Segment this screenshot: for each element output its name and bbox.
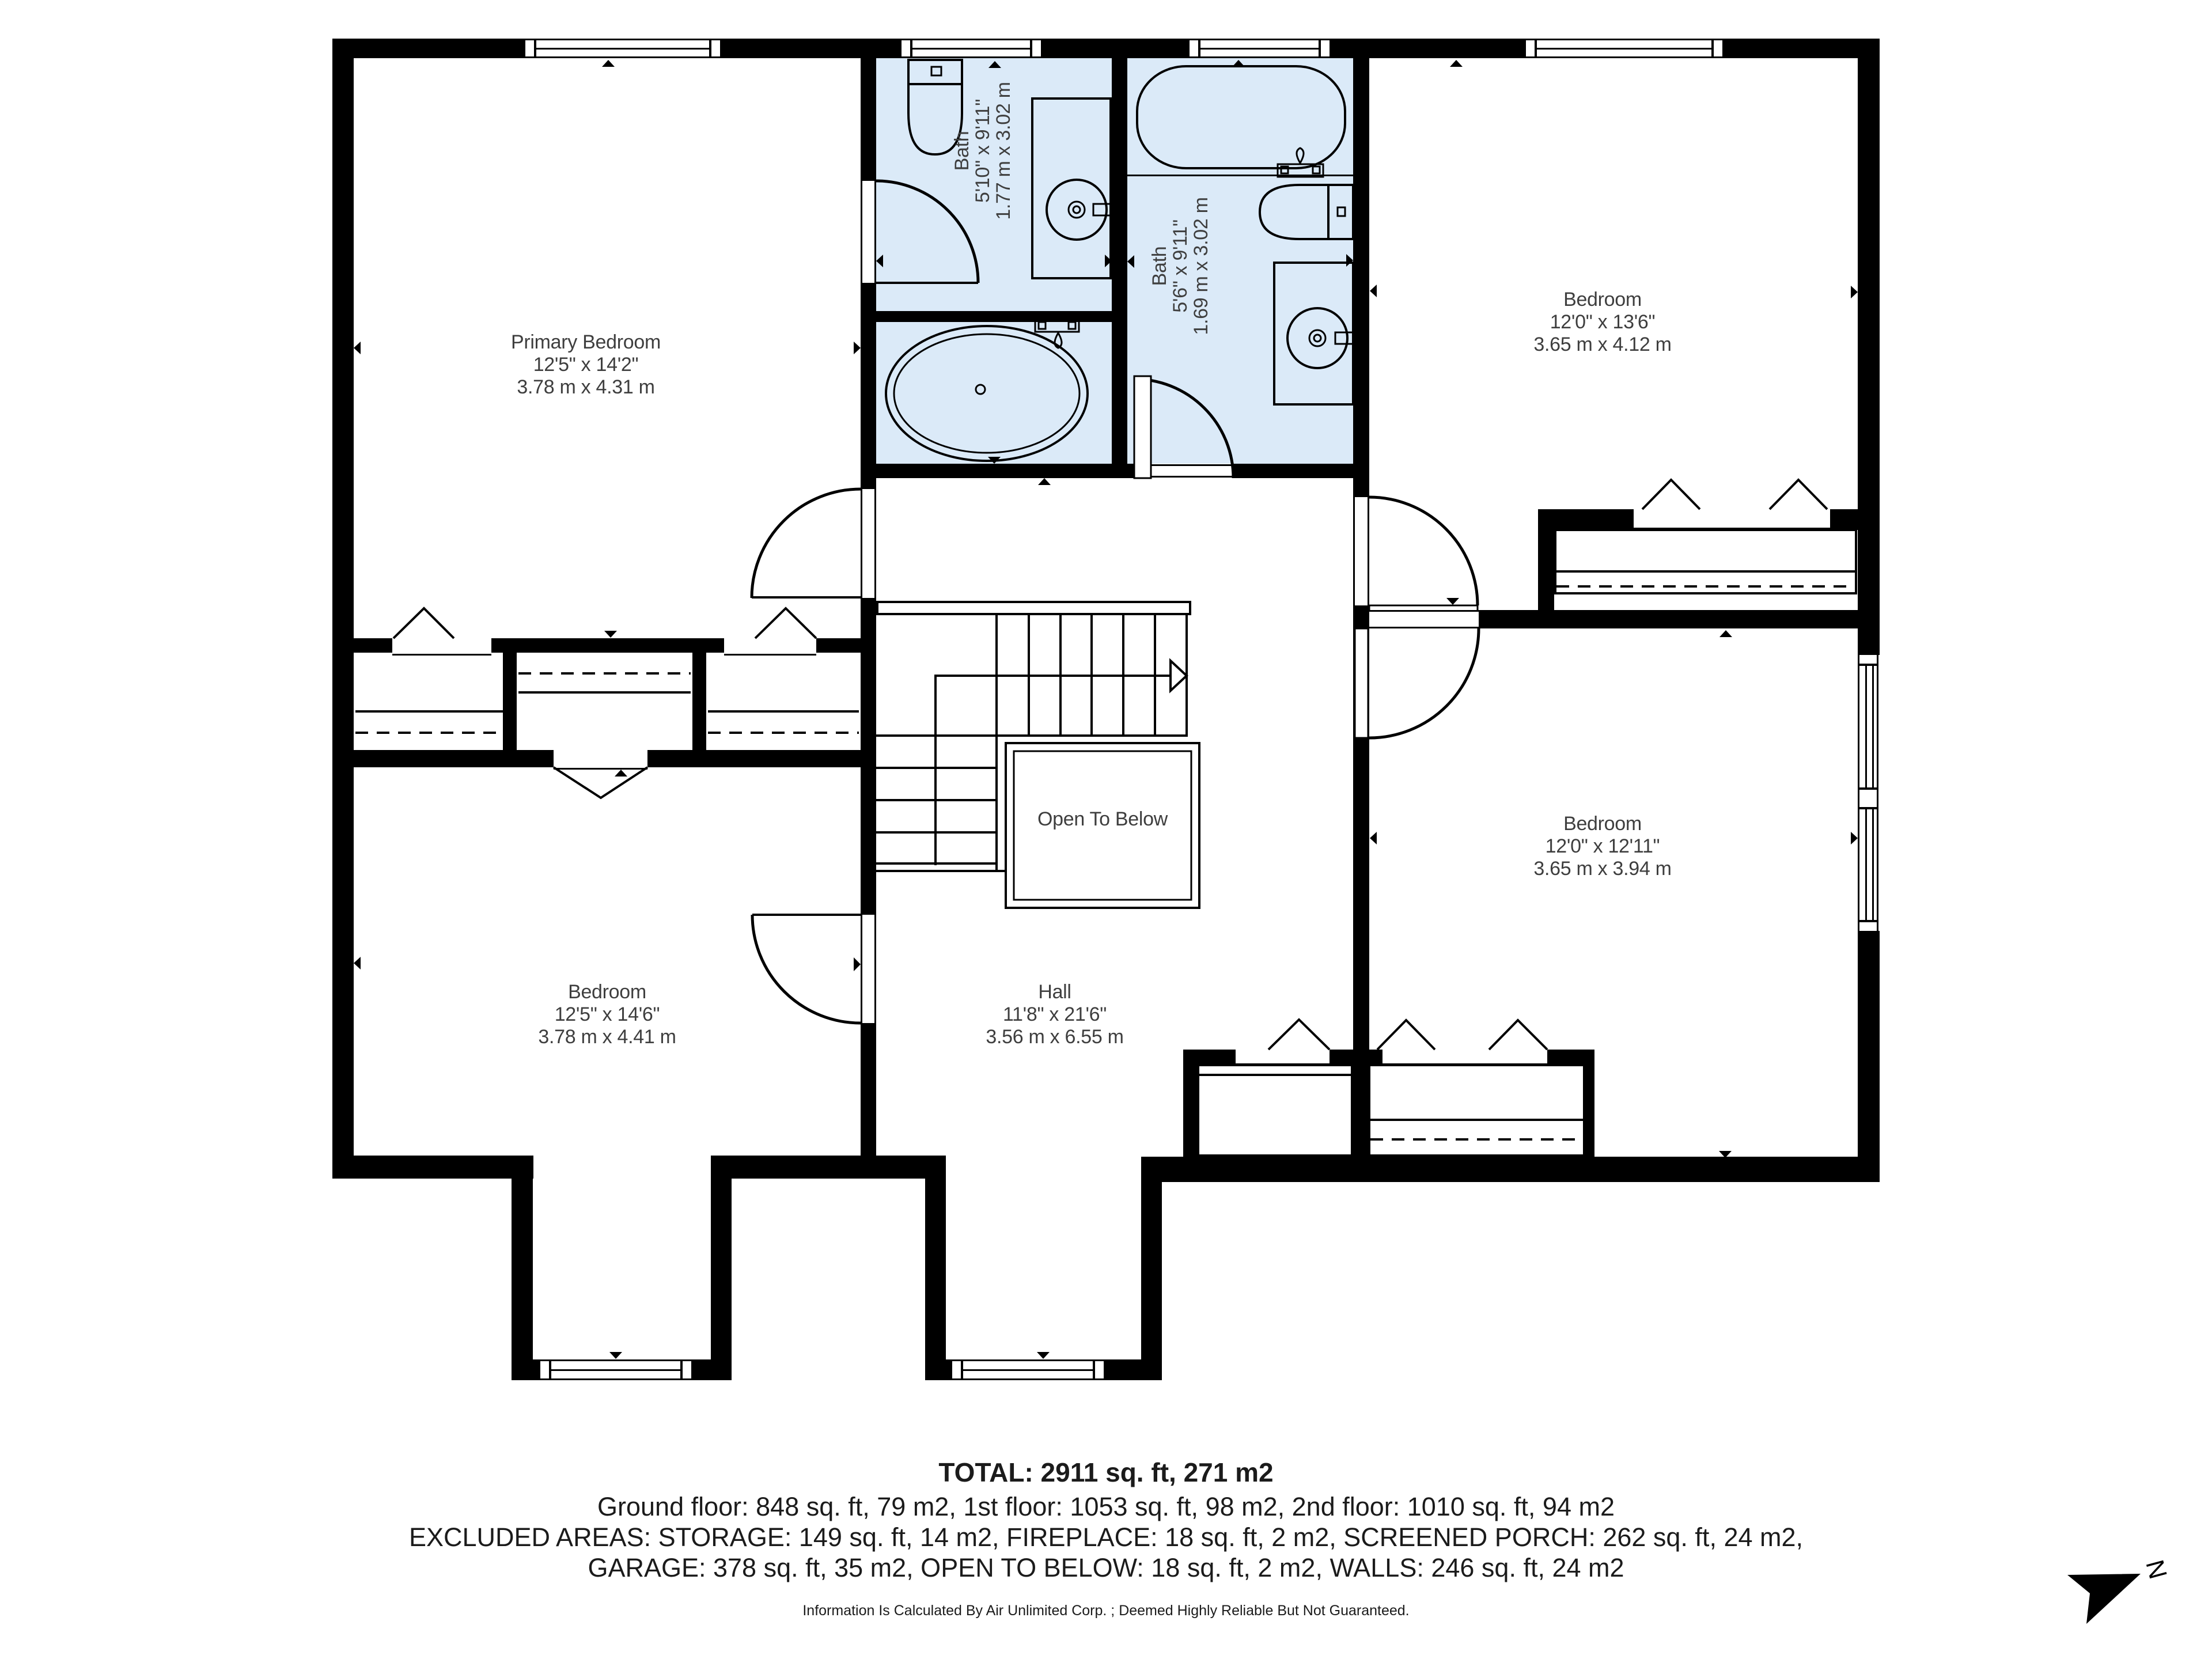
svg-text:3.78 m x 4.31 m: 3.78 m x 4.31 m <box>517 376 654 398</box>
svg-text:12'5" x 14'6": 12'5" x 14'6" <box>555 1003 660 1025</box>
svg-text:Information Is Calculated By A: Information Is Calculated By Air Unlimit… <box>802 1603 1409 1619</box>
svg-text:Open To Below: Open To Below <box>1037 808 1168 830</box>
svg-text:TOTAL: 2911 sq. ft, 271 m2: TOTAL: 2911 sq. ft, 271 m2 <box>938 1457 1273 1487</box>
svg-text:Primary Bedroom: Primary Bedroom <box>511 331 661 353</box>
svg-text:1.77 m x 3.02 m: 1.77 m x 3.02 m <box>993 82 1014 219</box>
svg-text:5'6" x 9'11": 5'6" x 9'11" <box>1169 219 1191 312</box>
svg-text:3.65 m x 4.12 m: 3.65 m x 4.12 m <box>1533 334 1671 355</box>
svg-text:EXCLUDED AREAS: STORAGE: 149 s: EXCLUDED AREAS: STORAGE: 149 sq. ft, 14 … <box>409 1522 1803 1552</box>
svg-text:12'0" x 12'11": 12'0" x 12'11" <box>1546 835 1660 857</box>
svg-text:12'5" x 14'2": 12'5" x 14'2" <box>533 354 639 376</box>
svg-text:Bedroom: Bedroom <box>1563 289 1642 310</box>
svg-text:Bath: Bath <box>1149 247 1171 286</box>
svg-text:3.78 m x 4.41 m: 3.78 m x 4.41 m <box>538 1026 676 1048</box>
svg-text:Ground floor: 848 sq. ft, 79 m: Ground floor: 848 sq. ft, 79 m2, 1st flo… <box>597 1492 1615 1521</box>
svg-text:11'8" x 21'6": 11'8" x 21'6" <box>1003 1003 1107 1025</box>
svg-text:Bath: Bath <box>951 131 973 171</box>
svg-text:3.65 m x 3.94 m: 3.65 m x 3.94 m <box>1533 858 1671 880</box>
svg-text:1.69 m x 3.02 m: 1.69 m x 3.02 m <box>1190 197 1212 335</box>
svg-text:3.56 m x 6.55 m: 3.56 m x 6.55 m <box>986 1026 1123 1048</box>
svg-text:5'10" x 9'11": 5'10" x 9'11" <box>972 99 994 203</box>
svg-text:Hall: Hall <box>1038 981 1071 1003</box>
svg-text:Bedroom: Bedroom <box>1563 813 1642 835</box>
svg-text:12'0" x 13'6": 12'0" x 13'6" <box>1550 311 1656 333</box>
svg-text:Bedroom: Bedroom <box>568 981 646 1003</box>
svg-text:GARAGE: 378 sq. ft, 35 m2, OPE: GARAGE: 378 sq. ft, 35 m2, OPEN TO BELOW… <box>588 1553 1624 1582</box>
